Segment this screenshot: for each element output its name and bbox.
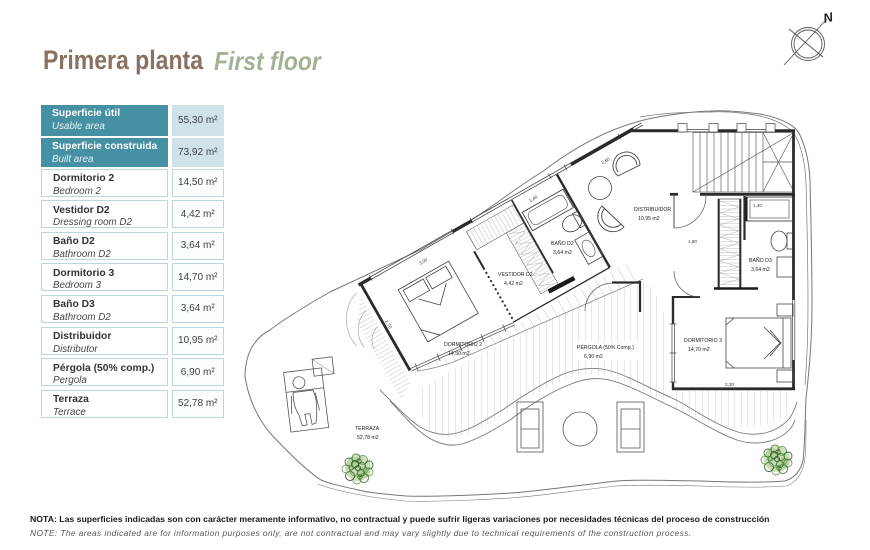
svg-text:3,64 m2: 3,64 m2 [751, 267, 770, 273]
svg-text:3,64 m2: 3,64 m2 [553, 250, 572, 256]
svg-text:DORMITORIO 3: DORMITORIO 3 [684, 338, 722, 344]
svg-text:6,90 m2: 6,90 m2 [584, 354, 603, 360]
svg-text:10,95 m2: 10,95 m2 [638, 216, 660, 222]
svg-text:1,40: 1,40 [753, 203, 762, 208]
svg-text:BAÑO D2: BAÑO D2 [551, 240, 574, 247]
svg-text:VESTIDOR D2: VESTIDOR D2 [498, 272, 533, 278]
svg-text:3,30: 3,30 [725, 382, 734, 387]
svg-text:3,00: 3,00 [418, 257, 429, 266]
svg-text:PÉRGOLA (50% Comp.): PÉRGOLA (50% Comp.) [577, 344, 634, 351]
svg-text:TERRAZA: TERRAZA [355, 426, 380, 432]
svg-text:4,42 m2: 4,42 m2 [504, 281, 523, 287]
svg-text:1,80: 1,80 [688, 239, 697, 244]
svg-text:2,60: 2,60 [600, 156, 611, 165]
svg-text:DISTRIBUIDOR: DISTRIBUIDOR [634, 207, 671, 213]
svg-text:DORMITORIO 2: DORMITORIO 2 [444, 342, 482, 348]
svg-text:1,40: 1,40 [528, 194, 539, 203]
svg-text:BAÑO D3: BAÑO D3 [749, 257, 772, 264]
svg-text:N: N [822, 9, 835, 26]
svg-text:14,70 m2: 14,70 m2 [688, 347, 710, 353]
svg-text:14,50 m2: 14,50 m2 [448, 351, 470, 357]
svg-text:52,78 m2: 52,78 m2 [357, 435, 379, 441]
